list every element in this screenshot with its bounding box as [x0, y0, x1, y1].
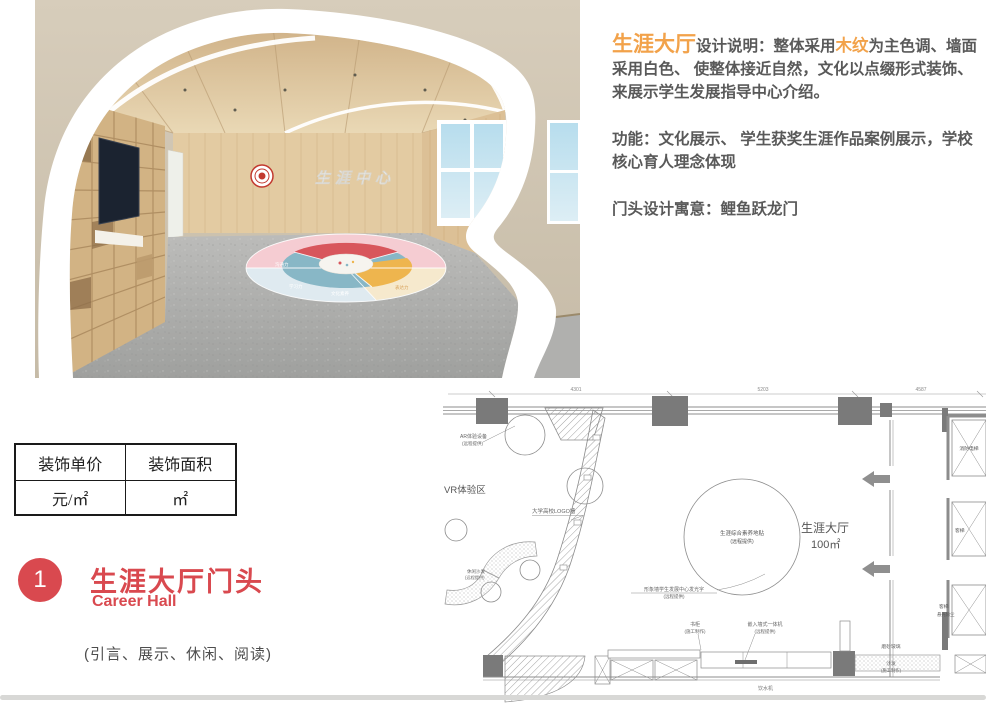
render-scene: 生涯中心 — [35, 0, 580, 378]
ar-leader — [483, 426, 515, 442]
top-wall — [443, 407, 986, 414]
elevator2-label: 客梯 — [939, 603, 949, 610]
leisure-sofa-remote: (远程提供) — [465, 574, 485, 581]
floor-sticker-circle — [684, 479, 800, 595]
outer-window — [547, 120, 580, 224]
ar-device-label: AR体验设备 — [460, 433, 487, 440]
tv-screen — [99, 138, 139, 224]
price-table-value-unit-price: 元/㎡ — [16, 481, 126, 514]
hall-name: 生涯大厅 — [801, 521, 849, 535]
price-table: 装饰单价 装饰面积 元/㎡ ㎡ — [14, 443, 237, 516]
structural-columns — [476, 396, 892, 426]
design-description: 生涯大厅设计说明：整体采用木纹为主色调、墙面采用白色、 使整体接近自然，文化以点… — [612, 33, 984, 245]
logo-wall-label: 大学高校LOGO墙 — [532, 507, 576, 515]
bottom-furniture — [483, 621, 940, 702]
wall-logo-text: 生涯中心 — [315, 170, 395, 187]
footer-divider — [0, 695, 986, 700]
career-hall-render: 生涯中心 — [35, 0, 580, 378]
dimension-line — [448, 391, 986, 397]
ar-device-remote: (远程提供) — [462, 440, 483, 447]
bookcase-note: (施工制作) — [685, 628, 706, 635]
doorway — [168, 150, 183, 238]
section-number-badge: 1 — [18, 558, 62, 602]
bookcase-leader — [698, 634, 701, 650]
dim-mid: 5203 — [757, 387, 768, 393]
entry-arrows — [862, 471, 890, 577]
price-table-header-unit-price: 装饰单价 — [16, 445, 126, 481]
price-table-value-area: ㎡ — [126, 481, 236, 514]
floor-sticker-remote: (远程提供) — [730, 538, 754, 545]
section-subtitle: Career Hall — [92, 593, 177, 611]
sofa-label: 沙发 — [886, 660, 896, 667]
aio-remote: (远程提供) — [755, 628, 776, 635]
dim-left: 4301 — [570, 387, 581, 393]
leisure-sofa-label: 休闲沙发 — [467, 568, 485, 575]
elevator-label: 客梯 — [955, 527, 965, 534]
price-table-header-area: 装饰面积 — [126, 445, 236, 481]
meaning-text: 门头设计寓意：鲤鱼跃龙门 — [612, 198, 984, 221]
dim-right: 4587 — [915, 387, 926, 393]
sofa-note: (施工制作) — [881, 667, 902, 674]
wood-highlight: 木纹 — [836, 37, 869, 55]
curved-logo-wall — [487, 408, 605, 668]
design-intro: 生涯大厅设计说明：整体采用木纹为主色调、墙面采用白色、 使整体接近自然，文化以点… — [612, 33, 984, 104]
water-dispenser-label: 饮水机 — [758, 685, 773, 692]
function-text: 功能：文化展示、 学生获奖生涯作品案例展示，学校核心育人理念体现 — [612, 128, 984, 174]
decal-label: 表达力 — [395, 284, 409, 291]
floor-sticker-label: 生涯综合素养地贴 — [720, 529, 765, 537]
hall-name-highlight: 生涯大厅 — [612, 33, 696, 56]
floor-plan-drawing: 4301 5203 4587 AR体验设备 (远程提供) VR体验区 大学高校L… — [443, 380, 986, 703]
image-wall-remote: (远程提供) — [664, 593, 685, 600]
hall-area: 100㎡ — [811, 538, 840, 551]
elevator2-note: 悬光除尘 — [937, 611, 955, 618]
decal-label: 沟通力 — [275, 261, 289, 268]
bookcase-label: 书柜 — [690, 621, 700, 628]
decal-label: 学习力 — [289, 283, 303, 290]
floor-plan: 4301 5203 4587 AR体验设备 (远程提供) VR体验区 大学高校L… — [443, 380, 986, 703]
section-note: (引言、展示、休闲、阅读) — [84, 643, 272, 664]
aio-label: 嵌入墙式一体机 — [747, 621, 782, 628]
right-wall-lines — [890, 420, 893, 677]
fire-elevator-label: 消防电梯 — [959, 445, 978, 452]
vr-zone-label: VR体验区 — [444, 484, 486, 496]
floor-decal: 沟通力 学习力 文化素养 表达力 — [246, 234, 446, 302]
frosted-glass-label: 磨砂玻璃 — [881, 643, 900, 650]
image-wall-label: 形象墙学生发展中心发光字 — [644, 586, 704, 593]
leisure-sofa — [445, 542, 537, 605]
school-logo — [251, 165, 273, 187]
decal-label: 文化素养 — [331, 290, 349, 297]
